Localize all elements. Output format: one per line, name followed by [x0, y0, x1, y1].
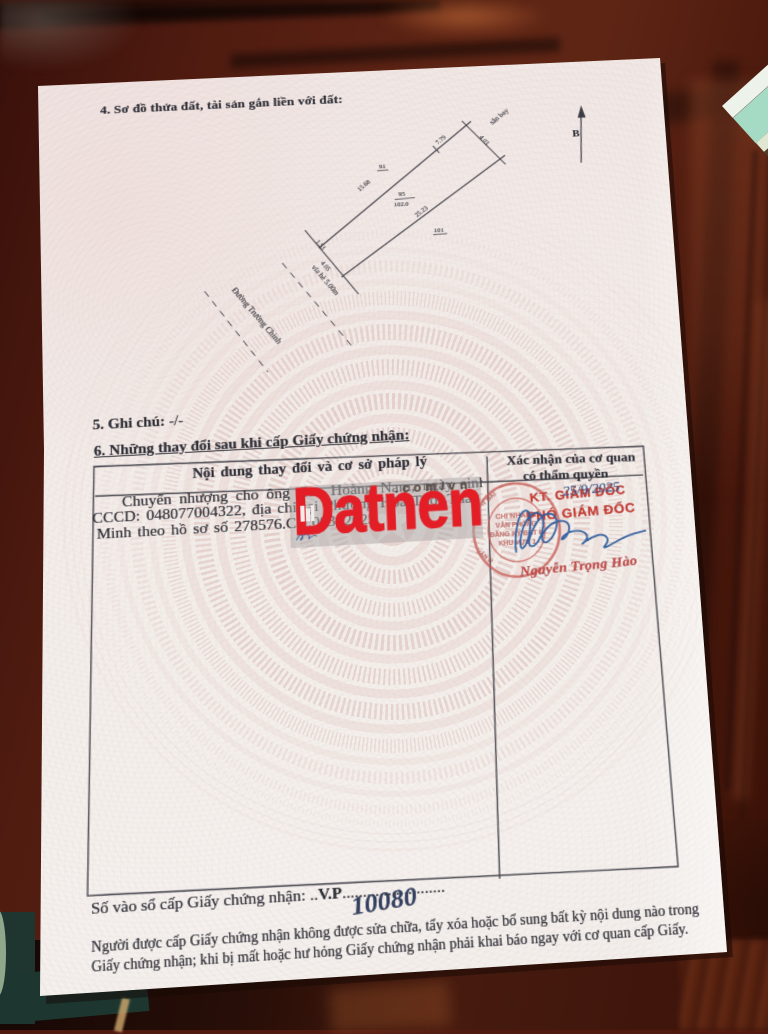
svg-text:sân bay: sân bay [488, 107, 511, 127]
svg-text:B: B [572, 129, 580, 140]
svg-text:102.0: 102.0 [394, 201, 409, 208]
svg-text:95: 95 [398, 191, 405, 198]
svg-text:7.79: 7.79 [434, 134, 447, 146]
svg-text:1.53: 1.53 [314, 239, 327, 252]
svg-text:91: 91 [379, 163, 386, 170]
svg-text:4.03: 4.03 [477, 134, 490, 146]
svg-text:101: 101 [434, 227, 444, 234]
svg-text:25.23: 25.23 [413, 205, 429, 219]
svg-text:15.68: 15.68 [356, 179, 372, 193]
svg-text:Đường Trường Chinh: Đường Trường Chinh [230, 286, 284, 346]
